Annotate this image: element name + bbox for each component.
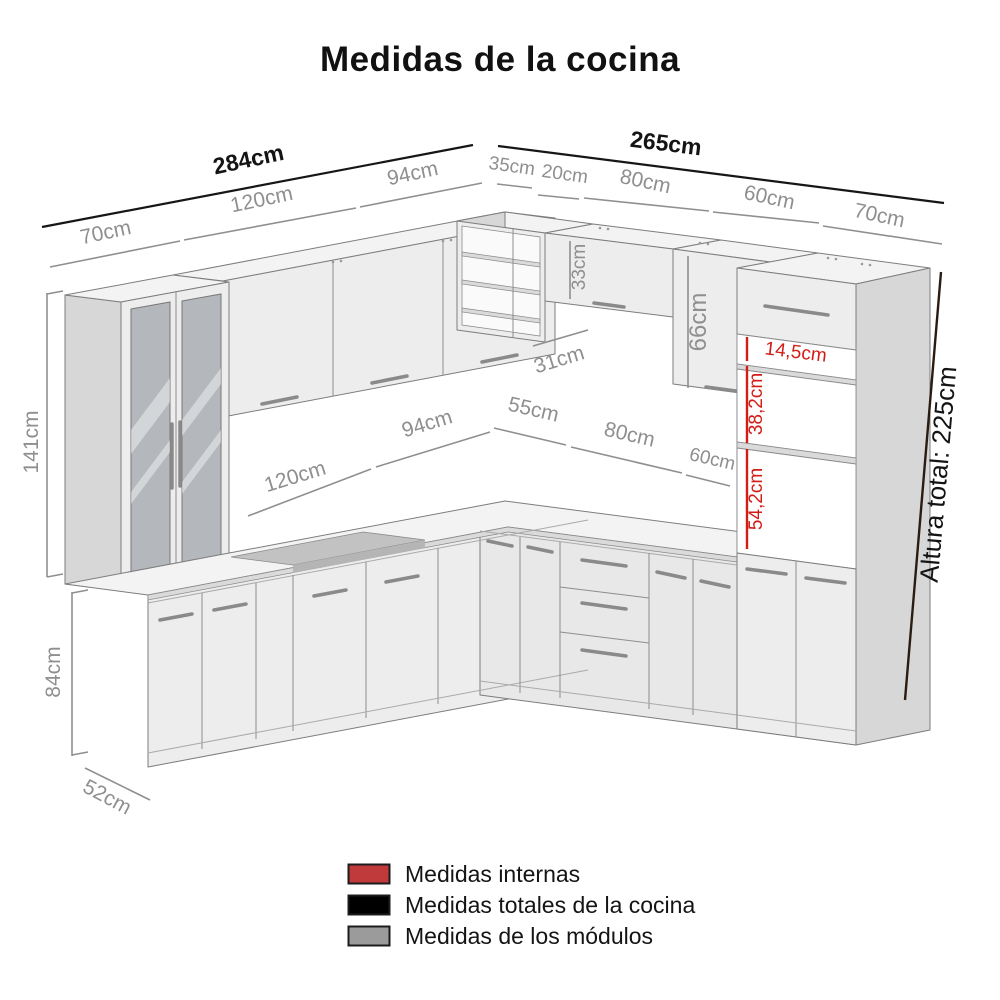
- dim-counter-94: 94cm: [399, 405, 455, 442]
- dim-flip-height-33: 33cm: [569, 244, 590, 290]
- dim-module-80-top: 80cm: [618, 165, 673, 198]
- dim-module-94-top: 94cm: [385, 157, 440, 190]
- dim-module-60-top: 60cm: [742, 181, 797, 214]
- dim-module-120-top: 120cm: [228, 182, 294, 218]
- dim-counter-55: 55cm: [506, 393, 561, 427]
- dim-upper-height-141: 141cm: [20, 410, 43, 473]
- dim-internal-54-2: 54,2cm: [746, 468, 767, 530]
- kitchen-measurements-page: Medidas de la cocina: [0, 0, 1000, 1000]
- legend-label-internal: Medidas internas: [405, 862, 580, 886]
- legend: Medidas internas Medidas totales de la c…: [347, 862, 695, 955]
- dim-counter-60: 60cm: [687, 444, 737, 475]
- dim-counter-80: 80cm: [602, 418, 657, 452]
- legend-swatch-black-icon: [347, 894, 391, 916]
- legend-label-total: Medidas totales de la cocina: [405, 893, 695, 917]
- legend-swatch-gray-icon: [347, 925, 391, 947]
- dim-total-width-right: 265cm: [629, 126, 703, 161]
- dim-total-width-left: 284cm: [211, 139, 286, 179]
- dim-module-70-left: 70cm: [78, 216, 133, 249]
- legend-item-total: Medidas totales de la cocina: [347, 893, 695, 917]
- dim-base-depth-52: 52cm: [79, 775, 135, 819]
- legend-item-internal: Medidas internas: [347, 862, 695, 886]
- dim-module-70-right: 70cm: [852, 199, 907, 232]
- dim-base-height-84: 84cm: [42, 646, 65, 697]
- dim-module-20: 20cm: [540, 161, 589, 188]
- dim-upper-height-66: 66cm: [685, 293, 712, 352]
- tall-glass-cabinet: [65, 275, 229, 591]
- kitchen-diagram: 284cm 70cm 120cm 94cm 265cm 35cm 20cm 80…: [0, 0, 1000, 1000]
- legend-label-modules: Medidas de los módulos: [405, 924, 653, 948]
- dim-internal-38-2: 38,2cm: [746, 373, 767, 435]
- legend-item-modules: Medidas de los módulos: [347, 924, 695, 948]
- glass-door-right: [182, 294, 221, 573]
- legend-swatch-red-icon: [347, 863, 391, 885]
- dim-counter-120: 120cm: [262, 457, 329, 497]
- dim-module-35: 35cm: [487, 153, 536, 180]
